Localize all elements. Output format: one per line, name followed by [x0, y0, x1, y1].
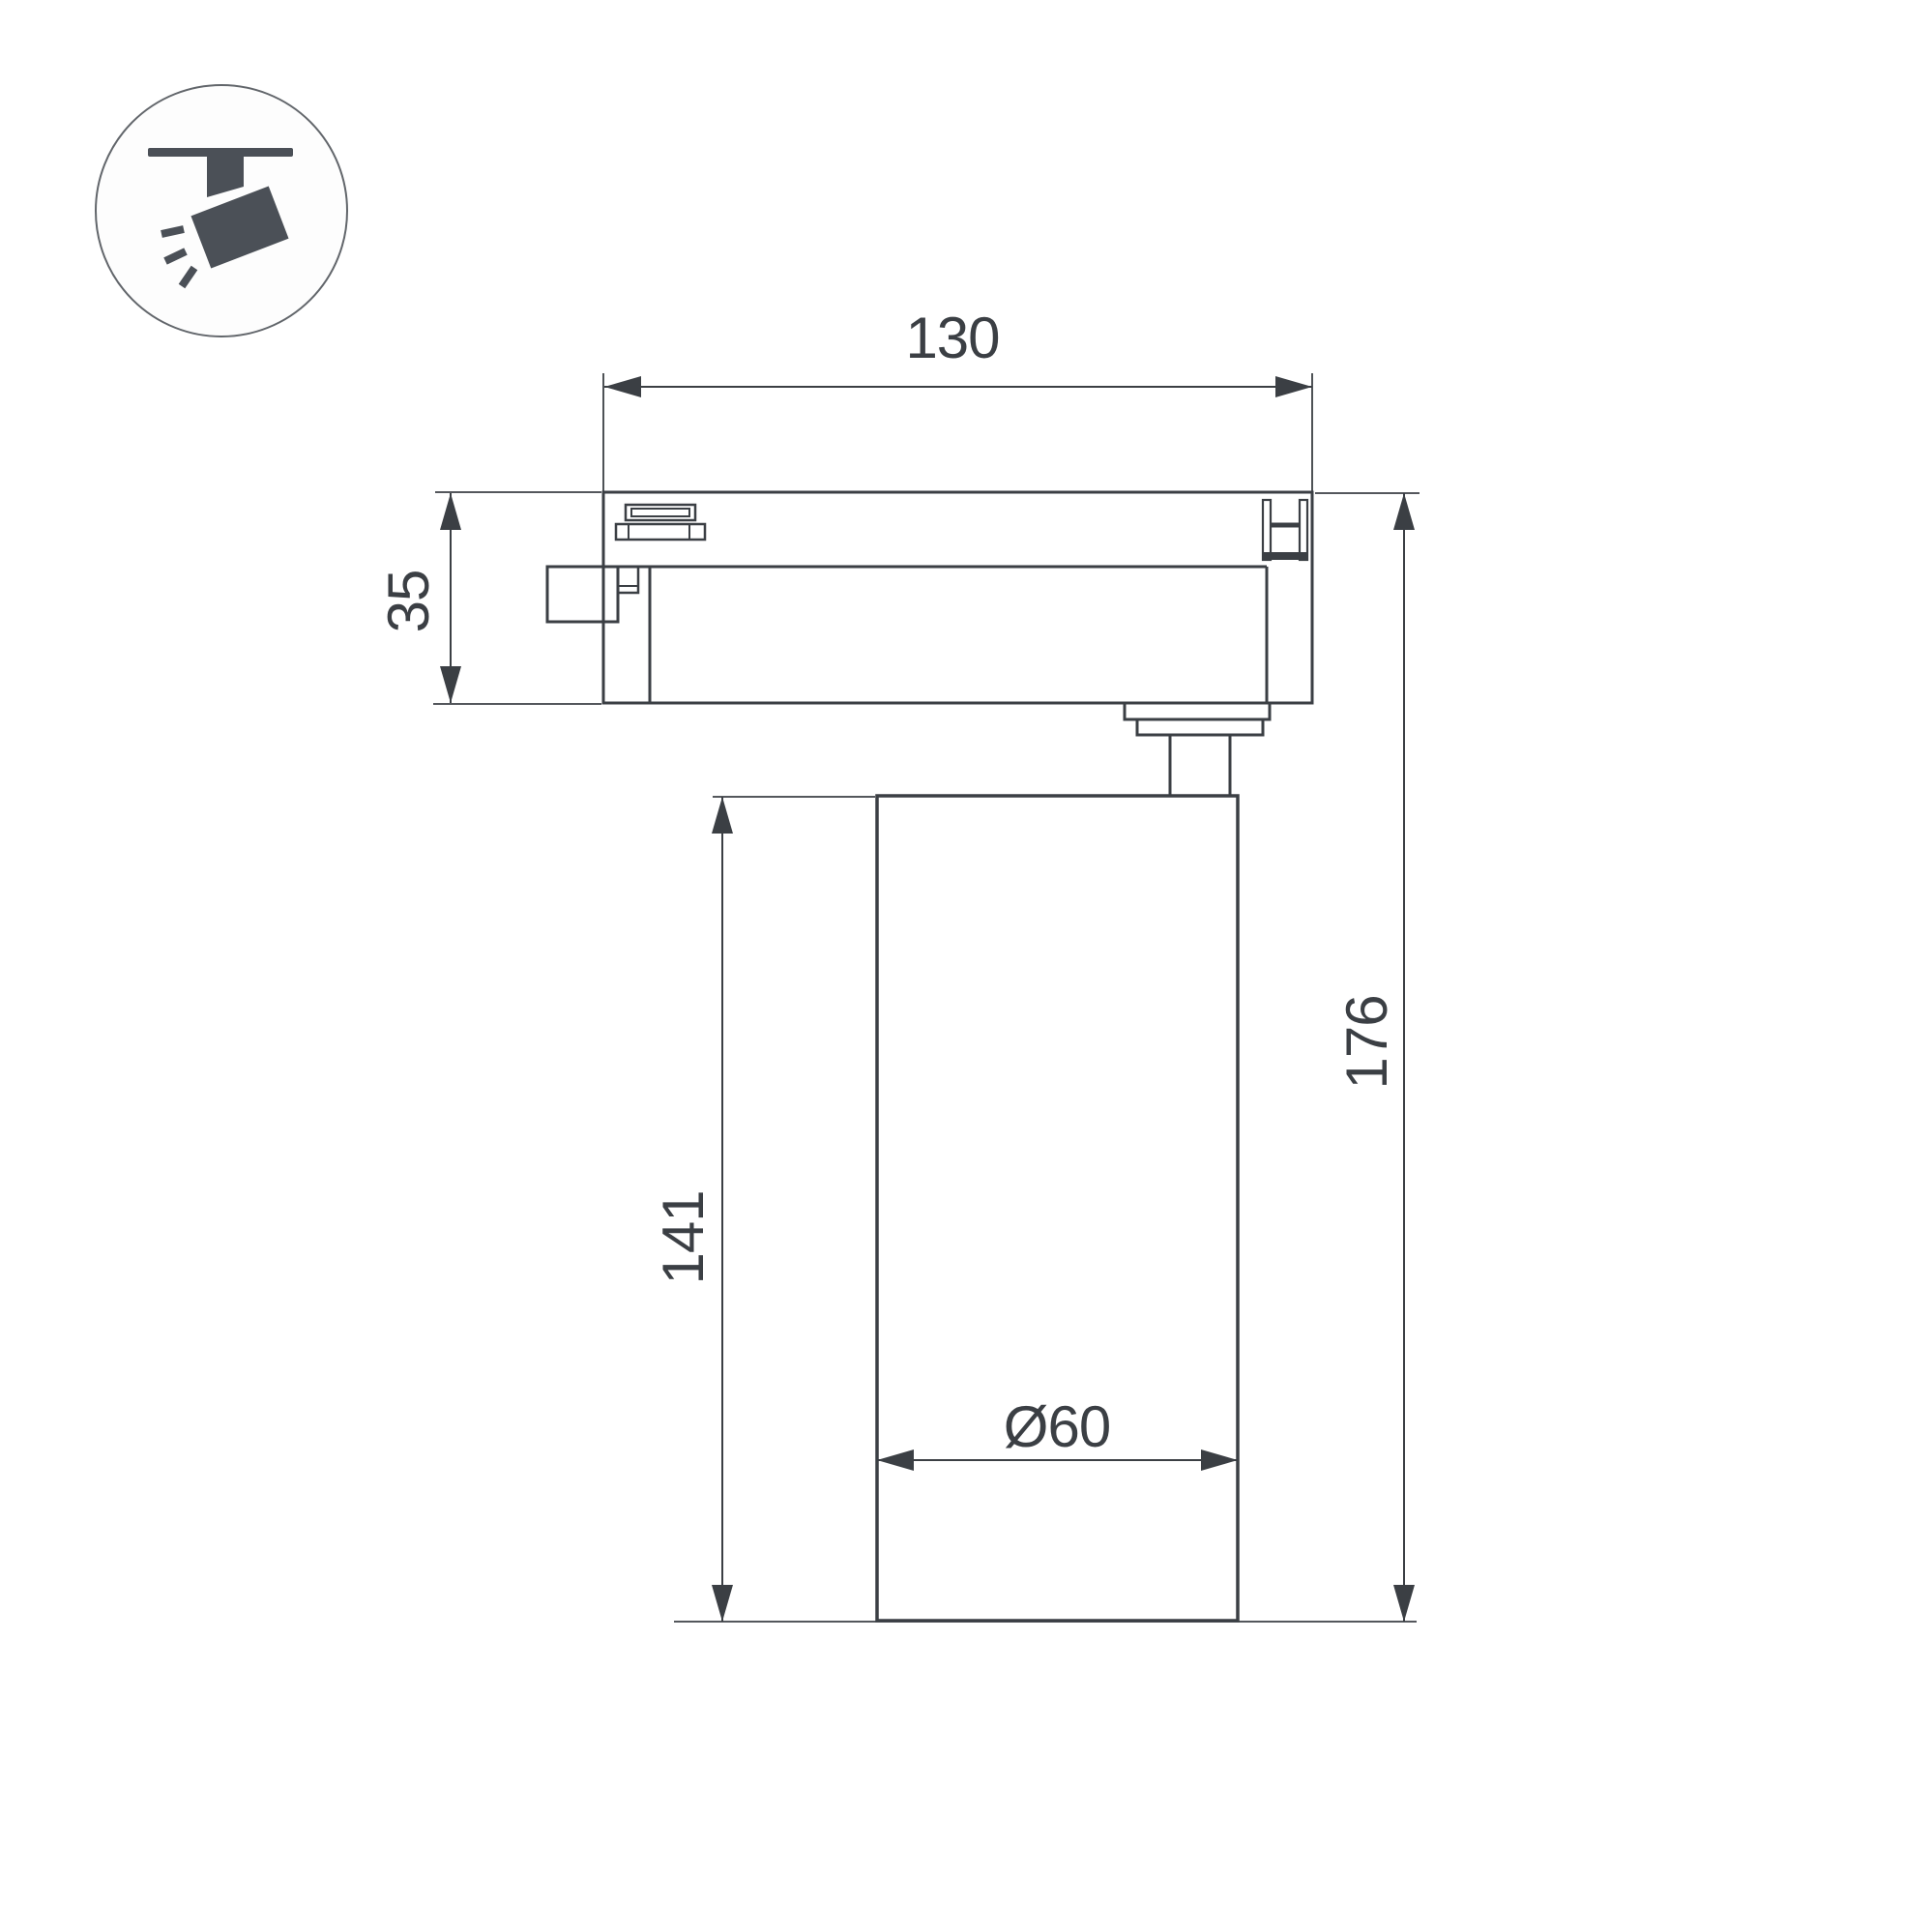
track-spotlight-icon — [96, 85, 347, 337]
track-adapter-outline — [603, 492, 1312, 703]
light-ray-icon — [161, 229, 184, 234]
lamp-body-outline — [877, 796, 1238, 1621]
arrowhead-141-top — [712, 797, 733, 834]
mount-clip-right-bar — [1300, 500, 1307, 560]
pivot-step-lower — [1137, 719, 1263, 735]
mount-clip-left-bar — [1263, 500, 1271, 560]
arrowhead-35-bottom — [440, 666, 461, 703]
arrowhead-176-top — [1393, 493, 1415, 530]
technical-drawing-page: 130 35 141 176 Ø6 — [0, 0, 1932, 1932]
arrowhead-141-bottom — [712, 1585, 733, 1622]
arrowhead-35-top — [440, 493, 461, 530]
dim-label-adapter-height: 35 — [376, 571, 441, 633]
drawing-svg: 130 35 141 176 Ø6 — [0, 0, 1932, 1932]
arrowhead-130-left — [604, 376, 641, 397]
dim-label-track-width: 130 — [905, 306, 999, 370]
pivot-step-upper — [1125, 703, 1270, 719]
icon-track-bar — [148, 148, 293, 157]
dim-label-total-height: 176 — [1334, 995, 1399, 1089]
arrowhead-176-bottom — [1393, 1585, 1415, 1622]
dim-label-body-diameter: Ø60 — [1004, 1394, 1110, 1459]
arrowhead-130-right — [1275, 376, 1312, 397]
luminaire-drawing — [547, 492, 1312, 1621]
dim-label-body-height: 141 — [651, 1190, 716, 1284]
pivot-stem — [1170, 735, 1230, 797]
